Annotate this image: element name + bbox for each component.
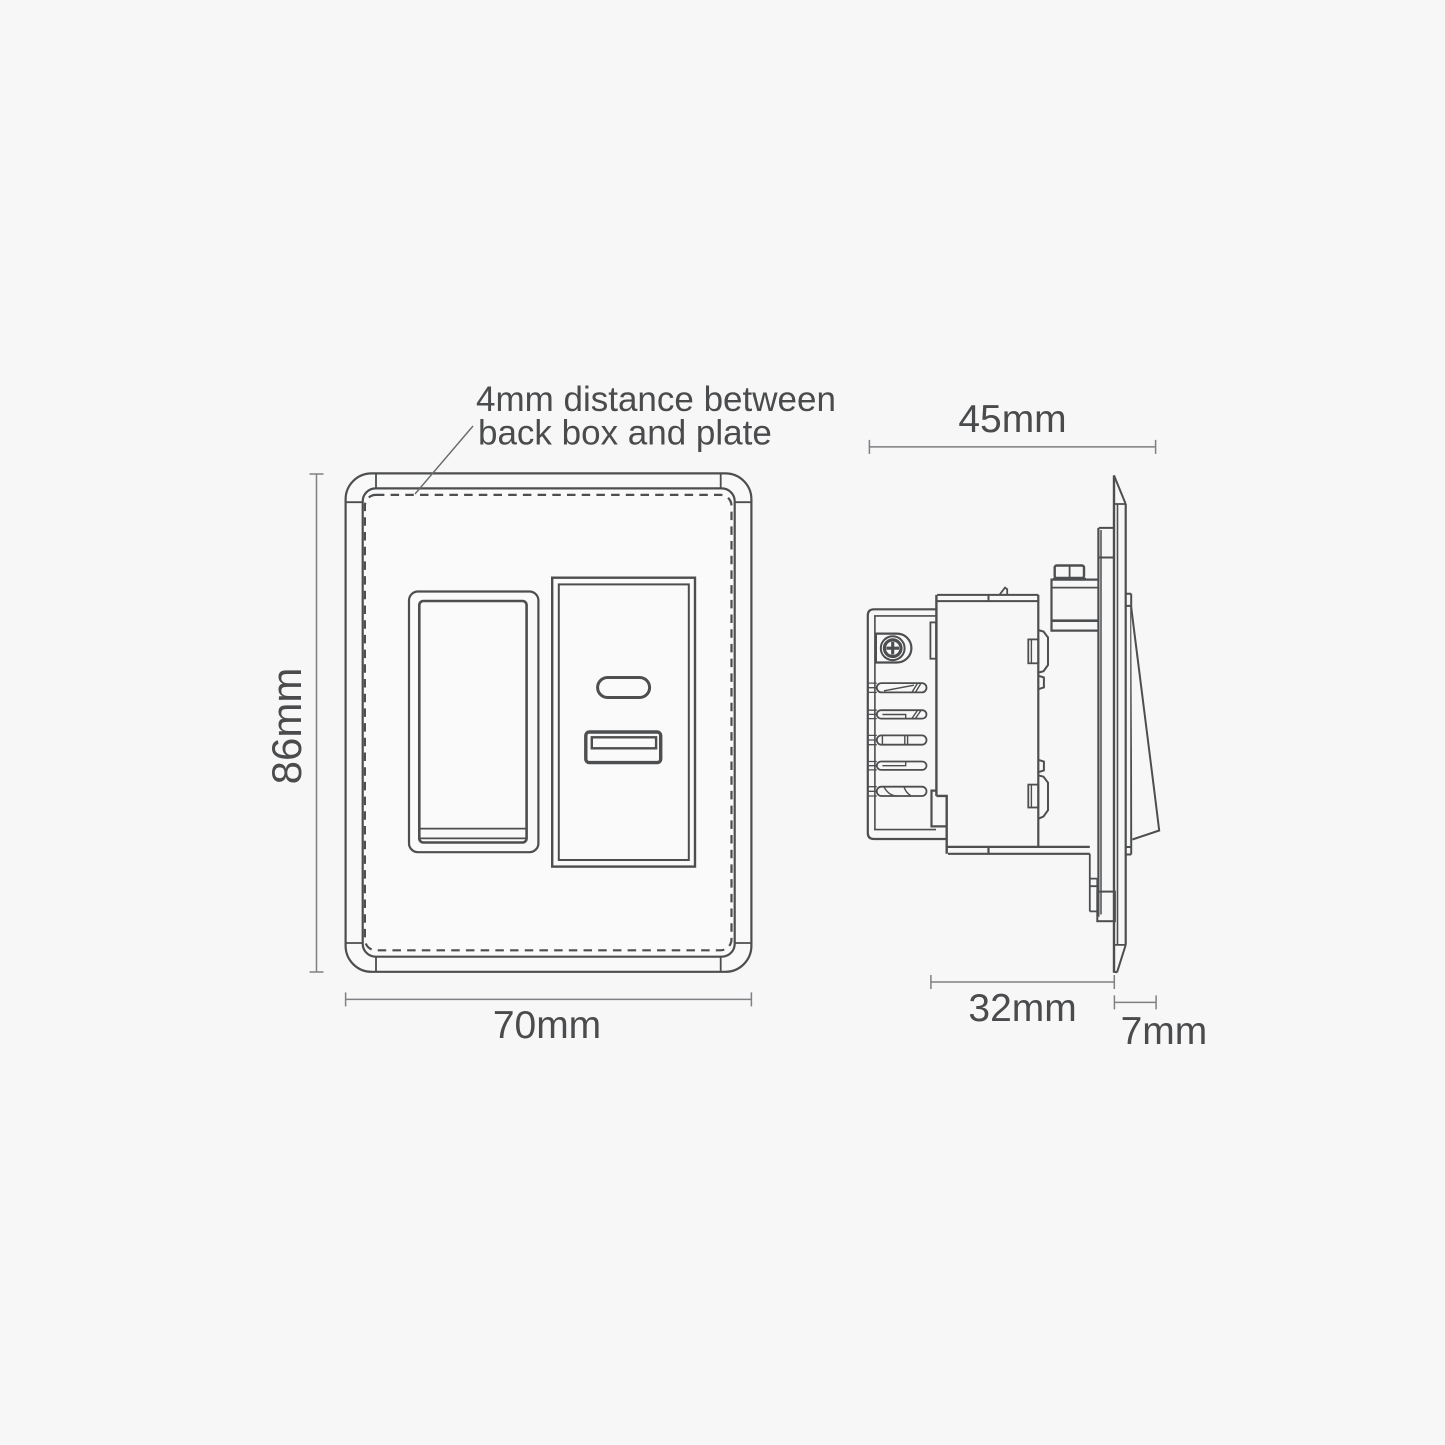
svg-text:70mm: 70mm [493, 1004, 601, 1047]
svg-text:32mm: 32mm [968, 987, 1076, 1030]
svg-text:45mm: 45mm [958, 398, 1066, 441]
svg-text:back box and plate: back box and plate [478, 414, 772, 453]
svg-text:7mm: 7mm [1121, 1010, 1208, 1053]
svg-text:86mm: 86mm [263, 668, 310, 785]
